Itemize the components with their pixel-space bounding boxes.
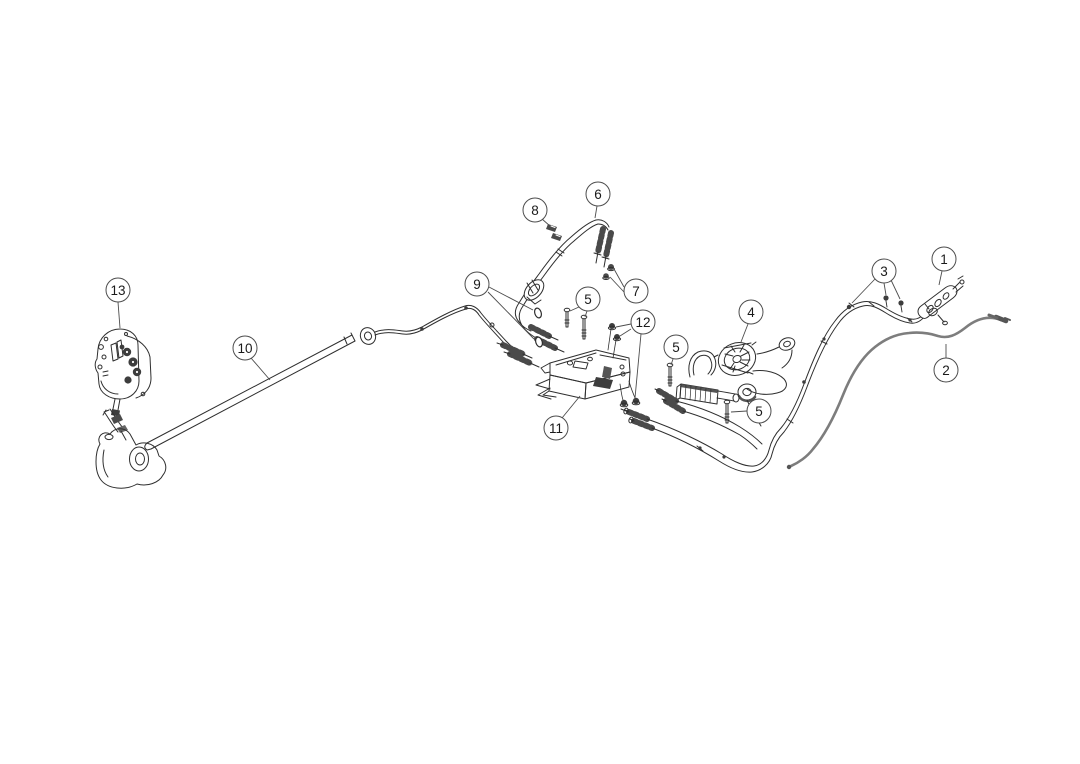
callout-leader-line [562,396,580,418]
callout-number: 2 [942,363,950,378]
callout-leader-line [595,206,597,218]
callout-11[interactable]: 11 [544,396,580,440]
callout-leader-line [614,269,624,287]
part-long-pipe [145,325,378,450]
callout-number: 5 [755,404,763,419]
callout-leader-line [620,329,631,336]
part-banjo-union [96,429,166,488]
callout-leader-line [251,358,270,380]
part-cable-harness [621,301,926,472]
callout-number: 1 [940,252,948,267]
callout-5-3[interactable]: 5 [731,399,771,423]
callout-leader-line [891,280,900,299]
callout-number: 8 [531,203,539,218]
callout-number: 10 [237,341,252,356]
diagram-line-art [95,220,1010,488]
part-thin-cable [375,305,539,367]
parts-diagram-page: 1234555678910111213 [0,0,1080,764]
callout-number: 7 [632,284,640,299]
callout-layer: 1234555678910111213 [106,182,958,440]
callout-number: 9 [473,277,481,292]
callout-13[interactable]: 13 [106,278,130,328]
callout-12[interactable]: 12 [616,310,655,398]
callout-6[interactable]: 6 [586,182,610,218]
part-retaining-clips [883,295,903,312]
part-mounting-bracket [536,350,630,399]
callout-2[interactable]: 2 [934,344,958,382]
callout-7[interactable]: 7 [610,269,648,303]
callout-leader-line [741,324,748,342]
callout-5-2[interactable]: 5 [664,335,688,365]
callout-leader-line [884,283,886,295]
callout-number: 13 [110,283,125,298]
callout-number: 4 [747,305,755,320]
bolt-1 [564,308,570,327]
callout-number: 5 [584,292,592,307]
part-hydraulic-pump [676,336,797,404]
callout-4[interactable]: 4 [739,300,763,342]
callout-leader-line [939,271,942,285]
callout-leader-line [616,324,631,327]
part-control-module [95,329,151,417]
callout-9[interactable]: 9 [465,272,534,339]
part-cable-end-connector [918,276,964,325]
callout-5[interactable]: 5 [570,287,600,317]
callout-1[interactable]: 1 [932,247,956,285]
callout-leader-line [118,302,120,328]
callout-leader-line [635,334,641,398]
bolt-3 [667,363,673,386]
callout-number: 6 [594,187,602,202]
callout-leader-line [542,219,550,226]
callout-8[interactable]: 8 [523,198,550,226]
callout-number: 12 [635,315,650,330]
part-spring-clips [546,224,562,241]
callout-number: 5 [672,340,680,355]
part-gray-cable [787,315,1010,469]
bolt-2 [581,315,587,339]
callout-3[interactable]: 3 [852,259,900,303]
callout-number: 11 [549,421,563,436]
callout-10[interactable]: 10 [233,336,270,380]
callout-number: 3 [880,264,888,279]
parts-diagram-canvas: 1234555678910111213 [0,0,1080,764]
callout-leader-line [570,307,579,311]
callout-leader-line [731,411,747,412]
callout-leader-line [610,277,624,292]
callout-leader-line [852,279,875,303]
